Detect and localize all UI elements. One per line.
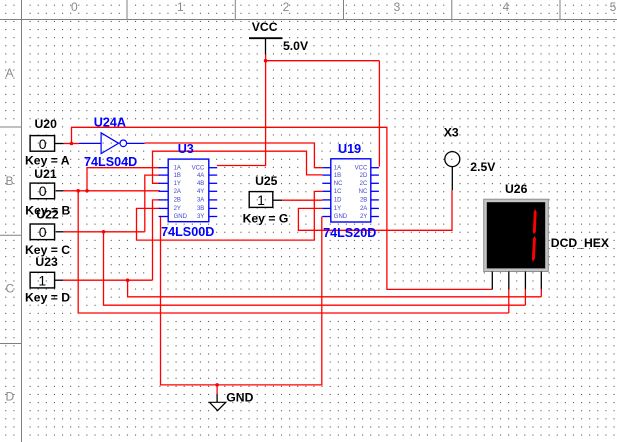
svg-text:VCC: VCC bbox=[252, 20, 278, 34]
svg-text:1: 1 bbox=[38, 273, 46, 289]
svg-text:4A: 4A bbox=[197, 173, 204, 179]
svg-text:NC: NC bbox=[359, 189, 368, 195]
svg-text:2A: 2A bbox=[360, 206, 367, 212]
svg-text:X3: X3 bbox=[444, 126, 459, 140]
svg-text:0: 0 bbox=[39, 224, 47, 240]
svg-text:3A: 3A bbox=[197, 198, 204, 204]
svg-text:2B: 2B bbox=[360, 198, 367, 204]
svg-text:2C: 2C bbox=[360, 181, 368, 187]
svg-text:NC: NC bbox=[334, 181, 343, 187]
svg-text:Key = G: Key = G bbox=[243, 212, 289, 226]
svg-text:U21: U21 bbox=[34, 167, 57, 181]
svg-text:3Y: 3Y bbox=[197, 214, 204, 220]
svg-text:U24A: U24A bbox=[94, 115, 126, 129]
svg-text:3: 3 bbox=[394, 0, 401, 14]
svg-text:0: 0 bbox=[39, 136, 47, 152]
svg-text:0: 0 bbox=[39, 183, 47, 199]
svg-text:A: A bbox=[6, 66, 14, 80]
svg-text:1: 1 bbox=[257, 192, 265, 208]
svg-text:1C: 1C bbox=[334, 189, 342, 195]
svg-text:U26: U26 bbox=[505, 182, 528, 196]
svg-text:2.5V: 2.5V bbox=[470, 160, 496, 174]
svg-text:U23: U23 bbox=[35, 255, 58, 269]
svg-text:U3: U3 bbox=[178, 142, 194, 156]
svg-text:1Y: 1Y bbox=[334, 206, 341, 212]
svg-text:C: C bbox=[6, 282, 15, 296]
svg-text:2B: 2B bbox=[174, 198, 181, 204]
svg-text:4B: 4B bbox=[197, 181, 204, 187]
svg-text:VCC: VCC bbox=[192, 165, 205, 171]
svg-text:GND: GND bbox=[226, 391, 253, 405]
svg-text:74LS00D: 74LS00D bbox=[161, 225, 214, 239]
svg-text:1D: 1D bbox=[334, 198, 342, 204]
svg-text:GND: GND bbox=[174, 214, 188, 220]
svg-text:1A: 1A bbox=[174, 165, 181, 171]
svg-text:74LS20D: 74LS20D bbox=[323, 226, 376, 240]
svg-text:2Y: 2Y bbox=[174, 206, 181, 212]
svg-text:4: 4 bbox=[503, 0, 510, 14]
svg-text:VCC: VCC bbox=[355, 165, 368, 171]
svg-text:4Y: 4Y bbox=[197, 189, 204, 195]
svg-text:5: 5 bbox=[610, 0, 617, 14]
svg-text:D: D bbox=[6, 390, 15, 404]
svg-text:2A: 2A bbox=[174, 189, 181, 195]
svg-text:3B: 3B bbox=[197, 206, 204, 212]
svg-text:Key = D: Key = D bbox=[25, 290, 70, 304]
svg-text:2: 2 bbox=[283, 0, 290, 14]
svg-text:U19: U19 bbox=[338, 142, 361, 156]
svg-text:74LS04D: 74LS04D bbox=[84, 155, 137, 169]
svg-text:GND: GND bbox=[334, 214, 348, 220]
svg-text:1B: 1B bbox=[334, 173, 341, 179]
svg-text:1B: 1B bbox=[174, 173, 181, 179]
svg-text:2Y: 2Y bbox=[360, 214, 367, 220]
svg-text:1: 1 bbox=[177, 0, 184, 14]
svg-text:B: B bbox=[6, 174, 14, 188]
svg-text:U22: U22 bbox=[36, 208, 59, 222]
svg-text:Key = A: Key = A bbox=[25, 154, 70, 168]
svg-text:1Y: 1Y bbox=[174, 181, 181, 187]
svg-text:2D: 2D bbox=[360, 173, 368, 179]
svg-text:U20: U20 bbox=[35, 117, 58, 131]
svg-text:U25: U25 bbox=[255, 174, 278, 188]
svg-text:1A: 1A bbox=[334, 165, 341, 171]
svg-text:0: 0 bbox=[71, 0, 78, 14]
svg-text:5.0V: 5.0V bbox=[283, 39, 309, 53]
svg-text:DCD_HEX: DCD_HEX bbox=[551, 236, 610, 250]
